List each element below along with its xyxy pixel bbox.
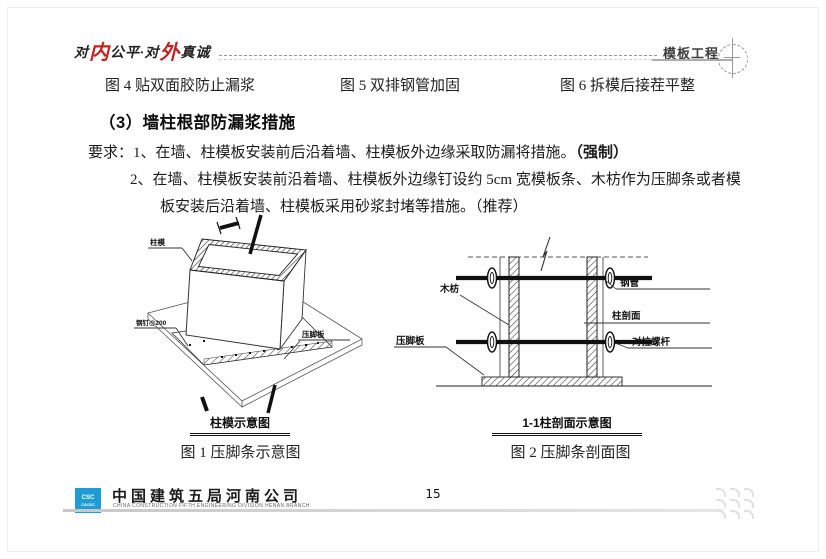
column-form-box — [186, 239, 306, 349]
page-number: 15 — [413, 487, 453, 501]
label-duilaluogan: 对拉螺杆 — [632, 336, 671, 348]
cut-line — [468, 237, 648, 271]
corner-glyph-icon — [744, 510, 754, 519]
figure1-drawing: 柱模 钢钉@200 压脚板 — [128, 213, 413, 418]
caption-fig6: 图 6 拆模后接茬平整 — [560, 74, 695, 95]
header-dashed-rule — [219, 55, 657, 60]
figure2-title: 1-1柱剖面示意图 — [492, 414, 642, 436]
timber-battens — [500, 257, 603, 377]
caption-fig5: 图 5 双排钢管加固 — [340, 74, 460, 95]
mandatory-tag: （强制） — [576, 144, 629, 161]
requirement-1-text: 要求：1、在墙、柱模板安装前后沿着墙、柱模板外边缘采取防漏将措施。 — [88, 145, 576, 161]
document-page: 对内公平·对外真诚 模板工程 图 4 贴双面胶防止漏浆 图 5 双排钢管加固 图… — [0, 0, 826, 559]
company-slogan: 对内公平·对外真诚 — [74, 42, 211, 62]
corner-glyph-icon — [716, 488, 726, 497]
corner-glyph-icon — [744, 499, 754, 508]
corner-glyph-icon — [744, 488, 754, 497]
callout-gangguan: 钢管 — [605, 277, 710, 289]
requirement-line-2: 2、在墙、柱模板安装前沿着墙、柱模板外边缘钉设约 5cm 宽模板条、木枋作为压脚… — [130, 167, 768, 194]
base-plate — [436, 377, 712, 386]
caption-fig4: 图 4 贴双面胶防止漏浆 — [105, 74, 255, 95]
label-gangguan: 钢管 — [620, 277, 640, 289]
logo-glyphs: CSC — [82, 495, 95, 502]
slogan-red-char: 内 — [89, 42, 110, 64]
label-yajiaoban: 压脚板 — [302, 329, 325, 339]
figure2-drawing: 木枋 压脚板 钢管 柱剖面 对拉螺杆 — [388, 226, 718, 426]
callout-zhumo: 柱模 — [148, 237, 192, 261]
label-gangding: 钢钉@200 — [136, 318, 167, 327]
corner-pattern — [714, 487, 760, 520]
corner-glyph-icon — [716, 499, 726, 508]
logo-abbr: CSCEC — [81, 502, 95, 507]
callout-mufang: 木枋 — [439, 283, 509, 325]
corner-glyph-icon — [730, 488, 740, 497]
registration-mark-hline — [724, 57, 740, 58]
requirements-text: 要求：1、在墙、柱模板安装前后沿着墙、柱模板外边缘采取防漏将措施。（强制） 2、… — [88, 139, 768, 221]
slogan-red-char: 外 — [160, 42, 181, 64]
slogan-text: 对 — [74, 46, 89, 61]
corner-glyph-icon — [730, 499, 740, 508]
corner-glyph-icon — [716, 510, 726, 519]
footer-rule — [63, 509, 723, 512]
figure1-title: 柱模示意图 — [190, 414, 290, 436]
slogan-text: 真诚 — [181, 46, 211, 61]
figure1-caption: 图 1 压脚条示意图 — [148, 441, 333, 462]
section-heading: （3）墙柱根部防漏浆措施 — [99, 109, 296, 133]
requirement-line-1: 要求：1、在墙、柱模板安装前后沿着墙、柱模板外边缘采取防漏将措施。（强制） — [88, 139, 768, 167]
label-yajiaoban2: 压脚板 — [396, 335, 425, 347]
corner-glyph-icon — [730, 510, 740, 519]
label-mufang: 木枋 — [439, 283, 460, 295]
slogan-text: 公平·对 — [110, 46, 160, 61]
figure2-caption: 图 2 压脚条剖面图 — [478, 441, 663, 462]
label-zhumo: 柱模 — [150, 237, 165, 247]
label-zhupoumian: 柱剖面 — [612, 310, 641, 322]
registration-mark-icon — [718, 44, 748, 74]
registration-mark-vline — [732, 38, 733, 78]
